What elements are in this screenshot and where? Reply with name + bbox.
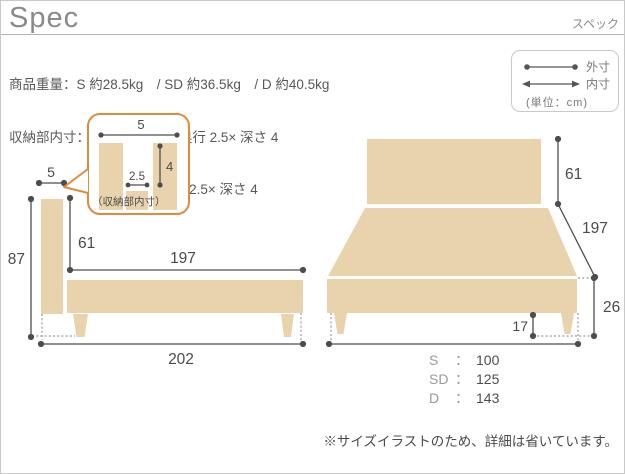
front-left-leg: [334, 313, 347, 334]
width-row-d: D：143: [429, 389, 499, 408]
width-row-sd: SD：125: [429, 370, 499, 389]
svg-text:5: 5: [137, 117, 144, 132]
callout-label: （収納部内寸）: [92, 195, 166, 208]
svg-text:202: 202: [168, 351, 194, 368]
measure-headboard-thickness: 5: [36, 164, 67, 186]
measure-total-length: 202: [38, 341, 306, 368]
front-right-leg: [561, 313, 574, 334]
svg-text:17: 17: [512, 318, 528, 334]
svg-text:87: 87: [8, 251, 25, 268]
storage-callout-bubble: 5 2.5 4 （収納部内寸）: [64, 114, 189, 214]
side-frame: [67, 280, 303, 313]
svg-text:61: 61: [565, 166, 582, 183]
measure-leg-height: 17: [512, 312, 536, 339]
spec-page: Spec スペック 商品重量：S 約28.5kg / SD 約36.5kg / …: [0, 0, 625, 474]
side-left-leg: [73, 314, 88, 337]
side-right-leg: [281, 314, 294, 337]
svg-text:26: 26: [603, 299, 620, 316]
width-value: 100: [476, 351, 499, 370]
svg-text:5: 5: [47, 164, 55, 180]
front-headboard: [367, 139, 541, 204]
measure-inner-length: 197: [67, 250, 306, 273]
callout-pointer: [64, 169, 88, 193]
width-size-label: S: [429, 351, 455, 370]
side-headboard: [41, 199, 63, 314]
front-mattress-top: [328, 208, 577, 276]
measure-front-headboard-height: 61: [555, 136, 582, 207]
front-frame: [327, 279, 577, 313]
width-separator: ：: [455, 351, 469, 370]
front-view-drawing: 61 197 26 17: [326, 136, 620, 347]
width-size-label: SD: [429, 370, 455, 389]
width-separator: ：: [455, 370, 469, 389]
svg-text:4: 4: [166, 159, 173, 174]
width-separator: ：: [455, 389, 469, 408]
width-value: 143: [476, 389, 499, 408]
width-size-label: D: [429, 389, 455, 408]
size-disclaimer-note: ※サイズイラストのため、詳細は省いています。: [323, 430, 618, 450]
svg-text:197: 197: [170, 250, 196, 267]
bed-spec-diagram: 5 87 61 197: [1, 1, 625, 474]
svg-text:61: 61: [78, 235, 95, 252]
width-values-table: S：100 SD：125 D：143: [429, 351, 499, 408]
width-row-s: S：100: [429, 351, 499, 370]
width-value: 125: [476, 370, 499, 389]
measure-frame-height: 26: [591, 275, 620, 339]
measure-total-height: 87: [8, 196, 34, 340]
svg-text:2.5: 2.5: [129, 171, 145, 183]
measure-front-width-line: [326, 341, 581, 347]
svg-text:197: 197: [582, 220, 608, 237]
